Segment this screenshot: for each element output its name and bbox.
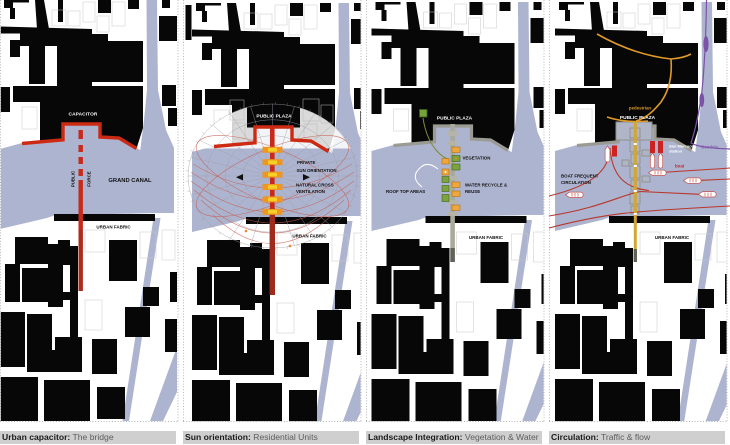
svg-text:BOAT FREQUENT: BOAT FREQUENT <box>561 174 599 179</box>
svg-text:CAPACITOR: CAPACITOR <box>69 112 98 118</box>
svg-text:PUBLIC PLAZA: PUBLIC PLAZA <box>256 114 292 120</box>
svg-text:PRIVATE: PRIVATE <box>297 160 315 165</box>
svg-text:URBAN FABRIC: URBAN FABRIC <box>96 224 131 229</box>
svg-text:VENTILATION: VENTILATION <box>296 189 325 194</box>
svg-text:REUSE: REUSE <box>465 189 480 194</box>
svg-text:boat: boat <box>675 164 685 169</box>
svg-text:FORCE: FORCE <box>87 171 92 186</box>
svg-text:URBAN FABRIC: URBAN FABRIC <box>655 235 690 240</box>
svg-text:PUBLIC: PUBLIC <box>71 170 76 187</box>
svg-text:PUBLIC PLAZA: PUBLIC PLAZA <box>437 116 473 122</box>
svg-text:pedestrian: pedestrian <box>629 106 652 111</box>
svg-text:GRAND CANAL: GRAND CANAL <box>108 178 152 184</box>
svg-text:Gondola: Gondola <box>701 145 719 150</box>
svg-text:SUN ORIENTATION: SUN ORIENTATION <box>297 168 337 173</box>
svg-text:ROOF TOP AREAS: ROOF TOP AREAS <box>386 189 425 194</box>
svg-text:URBAN FABRIC: URBAN FABRIC <box>469 235 504 240</box>
svg-text:URBAN FABRIC: URBAN FABRIC <box>292 233 327 238</box>
svg-text:WATER RECYCLE &: WATER RECYCLE & <box>465 183 508 188</box>
svg-text:CIRCULATION: CIRCULATION <box>561 180 591 185</box>
svg-text:PUBLIC PLAZA: PUBLIC PLAZA <box>620 115 656 121</box>
svg-text:NATURAL CROSS: NATURAL CROSS <box>296 183 334 188</box>
svg-text:station: station <box>669 149 683 154</box>
svg-text:VEGETATION: VEGETATION <box>463 156 491 161</box>
